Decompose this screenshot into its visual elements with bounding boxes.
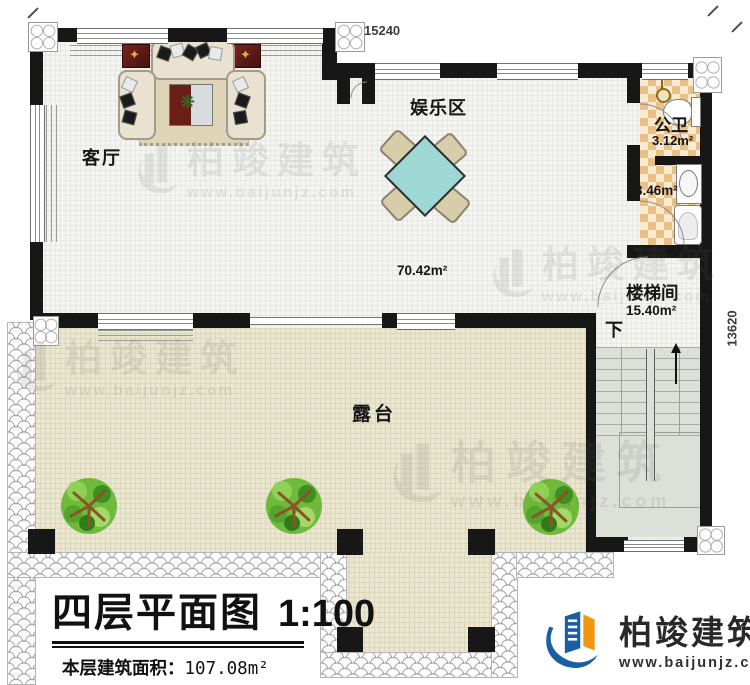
corner-ornament-icon [33, 316, 59, 346]
bathroom-area-label: 3.12m² [652, 134, 693, 147]
window-terrace-2 [397, 313, 455, 330]
window-top-3 [375, 63, 440, 80]
company-logo-icon [533, 602, 609, 674]
table-lamp-icon: ✦ [129, 47, 140, 63]
stair-direction-arrow [675, 352, 677, 384]
wall-right [700, 60, 712, 552]
potted-plant-icon: ❋ [180, 92, 195, 113]
stair-flight-line [621, 347, 622, 435]
sink-basin-icon [679, 170, 698, 197]
window-top-4 [497, 63, 578, 80]
company-website: www.baijunjz.com [619, 655, 750, 671]
wall-terrace-3 [382, 313, 397, 328]
dimension-tick-icon [731, 21, 742, 32]
column [337, 529, 363, 555]
window-stairwell [624, 540, 684, 552]
corner-ornament-icon [697, 526, 725, 555]
window-top-1 [77, 28, 168, 44]
stair-arrow-head-icon [671, 343, 681, 353]
game-table-set [370, 130, 476, 226]
corner-ornament-icon [693, 57, 722, 93]
stairwell-area-label: 15.40m² [626, 304, 676, 318]
floor-plan-canvas: ✦ ✦ ❋ [0, 0, 750, 685]
washroom-area-label: 3.46m² [635, 184, 678, 198]
window-top-2 [227, 28, 323, 44]
plan-scale: 1:100 [278, 593, 375, 636]
side-table-icon: ✦ [233, 44, 261, 68]
wall-terrace-4 [455, 313, 596, 328]
entertainment-label: 娱乐区 [410, 99, 467, 117]
title-block: 四层平面图 1:100 本层建筑面积：107.08m² 层高：3.0m [52, 580, 375, 685]
roof-tile-strip-ext-right [491, 552, 518, 678]
terrace-label: 露台 [352, 405, 396, 424]
tree-icon [520, 477, 582, 537]
stair-landing-outline [619, 432, 704, 508]
bathroom-label: 公卫 [654, 117, 688, 134]
cushion [233, 110, 248, 125]
roof-tile-strip-left [7, 322, 36, 685]
dimension-right: 13620 [726, 301, 739, 357]
wall-stairwell-left [586, 313, 596, 552]
stairs-down-label: 下 [605, 321, 623, 339]
wall-terrace-2 [193, 313, 250, 328]
glazing-band-terrace [98, 330, 193, 341]
sofa-set: ✦ ✦ ❋ [112, 36, 278, 148]
column [28, 529, 55, 554]
company-logo: 柏竣建筑 www.baijunjz.com [533, 602, 750, 674]
side-table-icon: ✦ [122, 44, 150, 68]
floor-area-value: 107.08m² [185, 659, 269, 679]
wall-step-stub-right [362, 78, 375, 104]
wall-bath-bottom [627, 245, 712, 258]
living-room-label: 客厅 [82, 149, 122, 167]
window-terrace-1 [98, 313, 193, 330]
column [468, 627, 495, 652]
title-underline [52, 646, 304, 648]
dimension-tick-icon [27, 7, 38, 18]
company-name: 柏竣建筑 [619, 606, 750, 654]
entertainment-area-label: 70.42m² [397, 264, 447, 278]
stair-flight-line [679, 347, 680, 435]
table-lamp-icon: ✦ [240, 47, 251, 63]
corner-ornament-icon [28, 22, 58, 52]
tree-icon [58, 476, 120, 536]
window-bathroom-top [642, 63, 688, 80]
stairwell-label: 楼梯间 [626, 285, 679, 303]
sliding-door-terrace [250, 317, 382, 325]
wall-bath-left-upper [627, 75, 640, 103]
floor-area-label: 本层建筑面积： [62, 658, 185, 678]
toilet-tank-icon [691, 97, 701, 127]
stair-handrail [646, 349, 655, 481]
column [468, 529, 495, 555]
cushion [208, 46, 223, 61]
dimension-tick-icon [707, 5, 718, 16]
corner-ornament-icon [335, 22, 365, 52]
window-left [30, 105, 45, 242]
roof-tile-strip-bottom-right [516, 552, 614, 578]
plan-title: 四层平面图 [52, 580, 262, 638]
dimension-top: 15240 [364, 24, 400, 37]
pendant-light-icon [656, 88, 671, 103]
glazing-band-left [46, 105, 57, 242]
roof-tile-strip-bottom-left [7, 552, 323, 578]
wall-stairwell-bottom-1 [586, 537, 628, 552]
washing-machine-drum-icon [678, 212, 698, 240]
tree-icon [263, 476, 325, 536]
wall-step-stub-left [337, 78, 350, 104]
title-underline [52, 641, 304, 644]
